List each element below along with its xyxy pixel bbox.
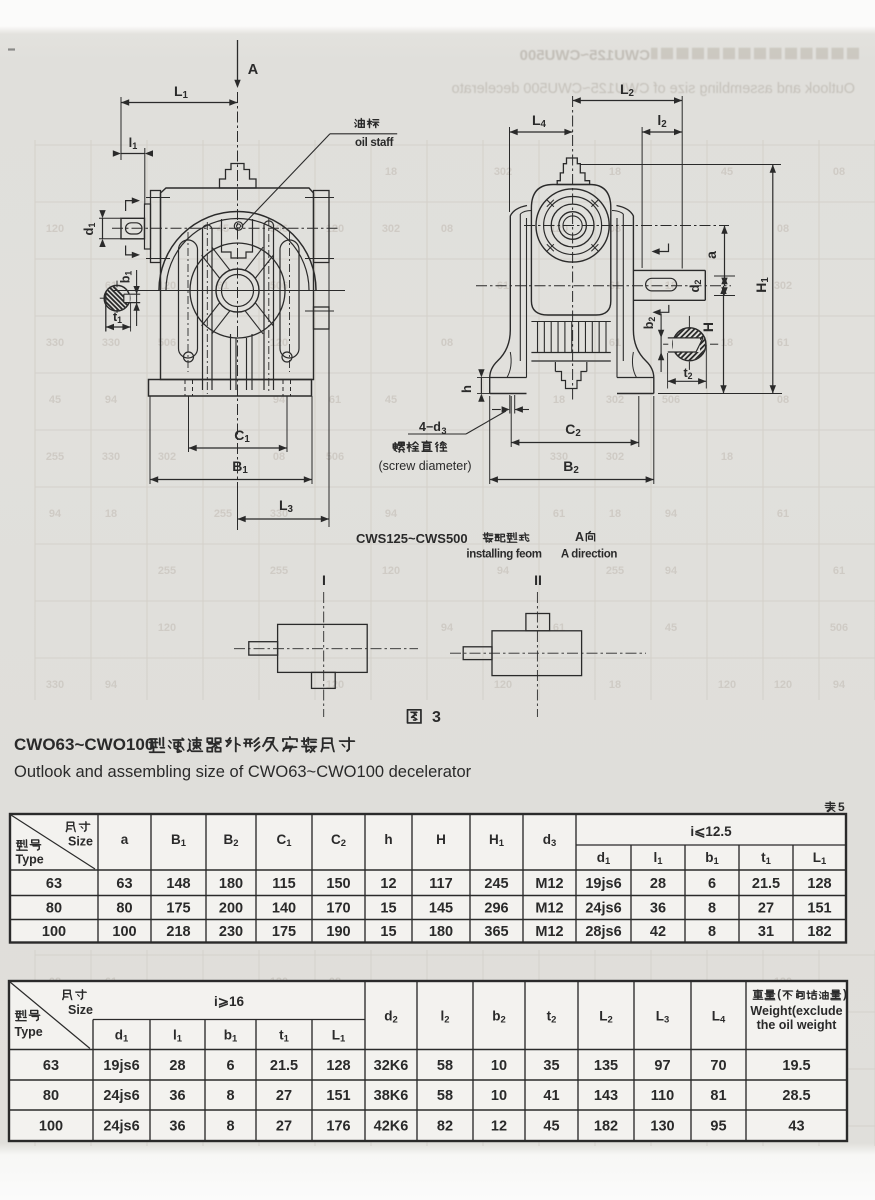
svg-text:100: 100	[42, 924, 66, 940]
svg-text:08: 08	[441, 337, 453, 349]
svg-text:38K6: 38K6	[374, 1088, 409, 1104]
svg-text:32K6: 32K6	[374, 1058, 409, 1074]
svg-text:A: A	[248, 62, 259, 78]
svg-text:302: 302	[158, 451, 176, 463]
svg-text:43: 43	[788, 1119, 804, 1135]
svg-text:a: a	[703, 251, 719, 259]
svg-text:150: 150	[326, 876, 350, 892]
svg-text:365: 365	[484, 924, 508, 940]
svg-text:45: 45	[49, 394, 61, 406]
svg-text:255: 255	[270, 565, 288, 577]
svg-text:63: 63	[43, 1058, 59, 1074]
svg-text:120: 120	[494, 679, 512, 691]
svg-text:A direction: A direction	[561, 549, 618, 561]
svg-text:145: 145	[429, 901, 453, 917]
svg-text:18: 18	[609, 166, 621, 178]
svg-text:24js6: 24js6	[103, 1088, 139, 1104]
svg-text:218: 218	[166, 924, 190, 940]
svg-text:45: 45	[543, 1119, 559, 1135]
svg-text:M12: M12	[535, 924, 563, 940]
svg-text:115: 115	[272, 876, 295, 892]
svg-text:19js6: 19js6	[585, 876, 621, 892]
svg-text:94: 94	[105, 679, 118, 691]
svg-text:h: h	[384, 832, 392, 847]
svg-text:oil staff: oil staff	[355, 137, 394, 149]
svg-text:302: 302	[382, 223, 400, 235]
svg-text:d1: d1	[81, 222, 97, 235]
svg-text:94: 94	[441, 622, 454, 634]
svg-text:61: 61	[329, 394, 341, 406]
svg-text:H1: H1	[753, 277, 771, 293]
svg-text:80: 80	[46, 901, 62, 917]
svg-text:l2: l2	[657, 112, 667, 130]
svg-text:C2: C2	[565, 421, 581, 439]
svg-text:L3: L3	[279, 497, 294, 515]
svg-text:18: 18	[553, 394, 565, 406]
svg-text:302: 302	[606, 451, 624, 463]
svg-text:120: 120	[158, 622, 176, 634]
svg-text:8: 8	[226, 1088, 234, 1104]
svg-text:H: H	[436, 832, 446, 847]
svg-text:(screw diameter): (screw diameter)	[378, 459, 471, 473]
svg-text:CWS125~CWS500: CWS125~CWS500	[356, 531, 468, 546]
svg-text:3: 3	[432, 709, 441, 726]
svg-text:302: 302	[774, 280, 792, 292]
svg-text:61: 61	[833, 565, 845, 577]
svg-text:80: 80	[43, 1088, 59, 1104]
svg-text:128: 128	[807, 876, 831, 892]
svg-text:Outlook and assembling size of: Outlook and assembling size of CWU125~CW…	[452, 81, 855, 97]
svg-text:176: 176	[326, 1119, 350, 1135]
svg-text:Type: Type	[16, 853, 44, 867]
svg-text:140: 140	[272, 901, 296, 917]
svg-text:97: 97	[654, 1058, 670, 1074]
svg-text:5: 5	[838, 800, 845, 814]
svg-text:35: 35	[543, 1058, 559, 1074]
svg-text:31: 31	[758, 924, 774, 940]
svg-text:120: 120	[382, 565, 400, 577]
svg-text:42K6: 42K6	[374, 1119, 409, 1135]
svg-text:8: 8	[226, 1119, 234, 1135]
svg-text:15: 15	[380, 924, 396, 940]
svg-text:255: 255	[214, 508, 232, 520]
svg-text:120: 120	[718, 679, 736, 691]
svg-text:installing feom: installing feom	[466, 549, 541, 561]
svg-text:302: 302	[606, 394, 624, 406]
svg-text:6: 6	[226, 1058, 234, 1074]
svg-text:27: 27	[276, 1088, 292, 1104]
svg-text:143: 143	[594, 1088, 618, 1104]
svg-text:08: 08	[777, 394, 789, 406]
svg-text:330: 330	[46, 337, 64, 349]
svg-text:10: 10	[491, 1058, 507, 1074]
svg-text:18: 18	[385, 166, 397, 178]
svg-text:94: 94	[105, 394, 118, 406]
svg-text:3: 3	[441, 426, 446, 436]
svg-text:h: h	[459, 385, 474, 393]
svg-text:45: 45	[217, 223, 229, 235]
svg-text:15: 15	[380, 901, 396, 917]
svg-text:10: 10	[491, 1088, 507, 1104]
svg-text:45: 45	[721, 166, 733, 178]
svg-text:t2: t2	[683, 366, 692, 381]
svg-text:58: 58	[437, 1088, 453, 1104]
svg-text:94: 94	[385, 508, 398, 520]
svg-text:506: 506	[830, 622, 848, 634]
svg-text:i⩾16: i⩾16	[214, 994, 245, 1009]
svg-text:12: 12	[491, 1119, 507, 1135]
svg-text:t1: t1	[113, 310, 122, 325]
svg-text:80: 80	[116, 901, 132, 917]
svg-text:CWO63~CWO100: CWO63~CWO100	[14, 735, 154, 754]
svg-text:24js6: 24js6	[103, 1119, 139, 1135]
svg-text:27: 27	[276, 1119, 292, 1135]
svg-text:151: 151	[326, 1088, 350, 1104]
svg-text:42: 42	[650, 924, 666, 940]
svg-text:81: 81	[710, 1088, 726, 1104]
svg-text:l1: l1	[129, 135, 138, 151]
svg-text:180: 180	[429, 924, 453, 940]
svg-text:255: 255	[158, 565, 176, 577]
svg-text:Size: Size	[68, 835, 93, 849]
svg-text:45: 45	[665, 622, 677, 634]
svg-text:151: 151	[807, 901, 831, 917]
svg-text:I: I	[322, 572, 326, 588]
svg-text:128: 128	[326, 1058, 350, 1074]
svg-text:175: 175	[166, 901, 190, 917]
svg-text:(: (	[777, 989, 781, 1001]
svg-text:175: 175	[272, 924, 296, 940]
svg-text:21.5: 21.5	[270, 1058, 298, 1074]
svg-text:18: 18	[609, 679, 621, 691]
svg-text:28: 28	[650, 876, 666, 892]
svg-text:506: 506	[270, 223, 288, 235]
svg-text:63: 63	[46, 876, 62, 892]
svg-text:82: 82	[437, 1119, 453, 1135]
svg-text:94: 94	[497, 565, 510, 577]
svg-text:08: 08	[441, 223, 453, 235]
svg-text:94: 94	[665, 508, 678, 520]
svg-text:8: 8	[708, 901, 716, 917]
svg-text:36: 36	[169, 1119, 185, 1135]
svg-text:28.5: 28.5	[782, 1088, 810, 1104]
svg-text:6: 6	[708, 876, 716, 892]
svg-text:120: 120	[774, 679, 792, 691]
svg-text:70: 70	[710, 1058, 726, 1074]
svg-text:28: 28	[169, 1058, 185, 1074]
svg-text:): )	[843, 989, 847, 1001]
svg-text:61: 61	[777, 508, 789, 520]
svg-text:Size: Size	[68, 1003, 93, 1017]
svg-text:21.5: 21.5	[752, 876, 780, 892]
svg-text:b2: b2	[642, 317, 657, 330]
svg-text:41: 41	[543, 1088, 559, 1104]
svg-text:182: 182	[594, 1119, 618, 1135]
svg-text:94: 94	[49, 508, 62, 520]
svg-text:255: 255	[606, 565, 624, 577]
svg-text:190: 190	[326, 924, 350, 940]
svg-text:A: A	[575, 530, 584, 544]
svg-text:i⩽12.5: i⩽12.5	[690, 824, 732, 839]
svg-text:180: 180	[219, 876, 243, 892]
svg-text:58: 58	[437, 1058, 453, 1074]
svg-text:18: 18	[721, 451, 733, 463]
svg-text:330: 330	[46, 679, 64, 691]
svg-text:Weight(exclude: Weight(exclude	[750, 1004, 842, 1018]
svg-text:296: 296	[484, 901, 508, 917]
svg-text:45: 45	[385, 394, 397, 406]
svg-text:255: 255	[46, 451, 64, 463]
svg-text:36: 36	[650, 901, 666, 917]
svg-text:19js6: 19js6	[103, 1058, 139, 1074]
svg-text:08: 08	[273, 451, 285, 463]
svg-text:135: 135	[594, 1058, 618, 1074]
svg-text:08: 08	[777, 223, 789, 235]
svg-text:19.5: 19.5	[782, 1058, 810, 1074]
svg-text:130: 130	[650, 1119, 674, 1135]
svg-text:61: 61	[777, 337, 789, 349]
svg-text:4−d: 4−d	[419, 420, 441, 434]
svg-text:II: II	[534, 572, 542, 588]
svg-text:18: 18	[609, 508, 621, 520]
svg-text:28js6: 28js6	[585, 924, 621, 940]
svg-text:36: 36	[169, 1088, 185, 1104]
svg-text:d2: d2	[687, 279, 703, 292]
svg-text:24js6: 24js6	[585, 901, 621, 917]
svg-text:27: 27	[758, 901, 774, 917]
svg-text:110: 110	[651, 1088, 674, 1104]
svg-text:120: 120	[46, 223, 64, 235]
svg-text:B2: B2	[563, 458, 579, 476]
svg-text:117: 117	[429, 876, 452, 892]
svg-text:148: 148	[166, 876, 190, 892]
svg-text:61: 61	[553, 622, 565, 634]
svg-text:63: 63	[116, 876, 132, 892]
svg-text:170: 170	[326, 901, 350, 917]
svg-text:120: 120	[270, 337, 288, 349]
svg-text:95: 95	[710, 1119, 726, 1135]
svg-text:330: 330	[102, 337, 120, 349]
svg-text:a: a	[121, 832, 129, 847]
svg-text:CWU125~CWU500: CWU125~CWU500	[520, 47, 650, 64]
svg-text:182: 182	[807, 924, 831, 940]
svg-text:100: 100	[112, 924, 136, 940]
svg-text:8: 8	[708, 924, 716, 940]
svg-text:H: H	[700, 322, 716, 332]
svg-text:18: 18	[721, 337, 733, 349]
svg-text:245: 245	[484, 876, 508, 892]
svg-text:330: 330	[102, 451, 120, 463]
svg-text:Outlook and assembling size of: Outlook and assembling size of CWO63~CWO…	[14, 763, 472, 781]
svg-text:12: 12	[380, 876, 396, 892]
svg-text:M12: M12	[535, 876, 563, 892]
svg-text:230: 230	[219, 924, 243, 940]
svg-text:Type: Type	[15, 1025, 43, 1039]
svg-text:b1: b1	[119, 271, 134, 284]
svg-text:18: 18	[105, 508, 117, 520]
svg-text:94: 94	[665, 565, 678, 577]
svg-text:200: 200	[219, 901, 243, 917]
svg-text:08: 08	[833, 166, 845, 178]
svg-text:506: 506	[662, 394, 680, 406]
svg-text:B1: B1	[232, 458, 248, 476]
svg-text:61: 61	[553, 508, 565, 520]
svg-text:61: 61	[609, 337, 621, 349]
svg-text:L1: L1	[174, 83, 189, 101]
svg-text:L4: L4	[532, 112, 547, 130]
svg-text:the oil weight: the oil weight	[757, 1018, 838, 1032]
svg-text:100: 100	[39, 1119, 63, 1135]
svg-text:M12: M12	[535, 901, 563, 917]
svg-text:94: 94	[833, 679, 846, 691]
